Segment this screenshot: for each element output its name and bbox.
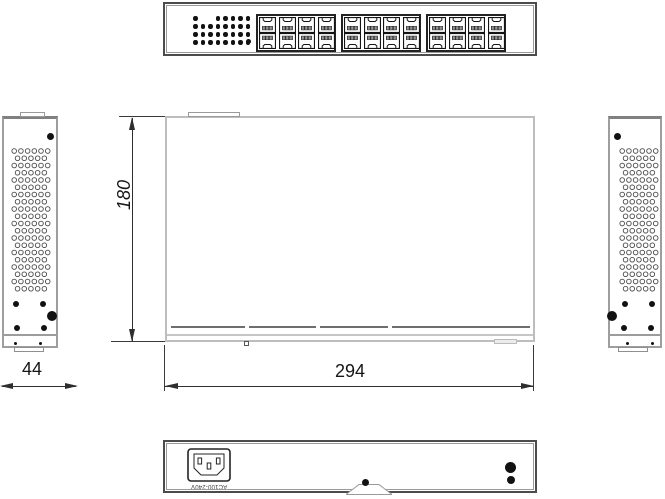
rj45-port <box>468 33 485 54</box>
left-side-top-tab <box>20 112 45 117</box>
port-group <box>341 14 421 52</box>
rj45-port-icon <box>279 17 296 33</box>
rj45-port-icon <box>344 17 361 33</box>
led-dot <box>231 32 236 37</box>
notch-screw-dot <box>362 479 369 486</box>
rj45-port-icon <box>468 17 485 33</box>
rj45-port <box>488 33 505 54</box>
led-dot <box>193 24 198 29</box>
power-inlet <box>187 448 231 487</box>
rj45-port <box>383 33 400 54</box>
top-view <box>165 116 535 342</box>
small-pin-dot <box>14 342 17 345</box>
led-dot <box>208 40 213 45</box>
rj45-port <box>259 33 276 54</box>
led-dot <box>201 32 206 37</box>
rj45-port-icon <box>383 17 400 33</box>
top-view-rear-tab <box>188 112 240 117</box>
rj45-port-icon <box>279 33 296 49</box>
port-group <box>256 14 336 52</box>
led-dot <box>246 24 251 29</box>
arrowhead-up-icon <box>129 117 135 130</box>
mount-notch <box>346 482 392 499</box>
rj45-port-icon <box>429 17 446 33</box>
led-dot <box>231 24 236 29</box>
led-dot <box>201 40 206 45</box>
power-led-dot <box>246 39 251 44</box>
right-side-view <box>608 116 662 348</box>
rj45-port <box>279 33 296 54</box>
top-view-rear-edge-segment <box>320 326 388 328</box>
led-dot <box>223 32 228 37</box>
top-view-rear-edge-segment <box>392 326 530 328</box>
mount-hole-dot <box>649 301 655 307</box>
led-dot <box>216 40 221 45</box>
top-view-small-square-marker <box>244 341 249 346</box>
mount-hole-dot <box>13 301 19 307</box>
rj45-port-icon <box>403 17 420 33</box>
led-dot <box>193 16 198 21</box>
mount-hole-dot <box>41 325 47 331</box>
rj45-port-icon <box>259 33 276 49</box>
top-view-front-strip-line <box>167 334 533 336</box>
rj45-port-icon <box>403 33 420 49</box>
vent-holes-icon <box>618 147 660 292</box>
led-dot <box>208 32 213 37</box>
led-dot <box>216 32 221 37</box>
top-view-rear-edge-segment <box>171 326 245 328</box>
extension-line <box>111 341 165 342</box>
vent-grid <box>618 147 660 297</box>
led-dot <box>216 16 221 21</box>
side-base-divider <box>4 334 56 336</box>
rj45-port-icon <box>318 17 335 33</box>
rj45-port <box>318 33 335 54</box>
left-side-foot <box>14 347 44 352</box>
dimension-line <box>132 118 133 341</box>
rj45-port <box>364 33 381 54</box>
rear-knob-large-dot <box>505 462 516 473</box>
led-dot <box>238 40 243 45</box>
small-pin-dot <box>651 342 654 345</box>
arrowhead-right-icon <box>65 383 78 389</box>
rj45-port <box>298 33 315 54</box>
rj45-port <box>429 33 446 54</box>
rj45-port <box>449 33 466 54</box>
extension-line <box>119 116 165 117</box>
mount-hole-dot <box>40 301 46 307</box>
port-group <box>426 14 506 52</box>
mount-hole-dot <box>622 301 628 307</box>
rj45-port-icon <box>298 17 315 33</box>
left-side-view <box>2 116 58 348</box>
led-dot <box>238 16 243 21</box>
rj45-port-icon <box>383 33 400 49</box>
rear-view: AC100-240V <box>163 440 537 493</box>
vent-grid <box>10 147 52 297</box>
arrowhead-left-icon <box>165 383 178 389</box>
rj45-port-icon <box>259 17 276 33</box>
led-dot <box>223 16 228 21</box>
led-dot <box>238 24 243 29</box>
dimension-label-height: 180 <box>114 165 134 225</box>
arrowhead-right-icon <box>521 383 534 389</box>
rj45-port-icon <box>488 17 505 33</box>
mount-hole-dot <box>621 325 627 331</box>
side-base-divider <box>610 334 660 336</box>
led-dot <box>231 40 236 45</box>
led-dot <box>246 16 251 21</box>
vent-holes-icon <box>10 147 52 292</box>
led-dot <box>193 32 198 37</box>
rj45-port-icon <box>344 33 361 49</box>
front-view <box>163 2 537 56</box>
rear-knob-small-dot <box>507 476 515 484</box>
arrowhead-down-icon <box>129 329 135 342</box>
led-dot <box>201 24 206 29</box>
rj45-port <box>403 33 420 54</box>
mount-notch-icon <box>346 484 392 495</box>
power-inlet-label: AC100-240V <box>187 483 231 489</box>
mount-hole-dot <box>648 325 654 331</box>
top-view-front-slot <box>494 339 517 344</box>
rj45-port-icon <box>429 33 446 49</box>
large-mount-hole-dot <box>47 311 57 321</box>
led-dot <box>246 32 251 37</box>
small-pin-dot <box>626 342 629 345</box>
led-dot <box>231 16 236 21</box>
led-dot <box>223 40 228 45</box>
arrowhead-left-icon <box>0 383 13 389</box>
rj45-port-icon <box>318 33 335 49</box>
drawing-canvas: 180 294 44 AC100-240V <box>0 0 665 499</box>
led-dot <box>208 24 213 29</box>
led-dot <box>193 40 198 45</box>
rj45-port-icon <box>488 33 505 49</box>
small-pin-dot <box>39 342 42 345</box>
large-mount-hole-dot <box>607 311 617 321</box>
screw-hole-dot <box>47 133 54 140</box>
rj45-port-icon <box>449 17 466 33</box>
right-side-foot <box>618 347 648 352</box>
rj45-port-icon <box>364 17 381 33</box>
led-dot <box>223 24 228 29</box>
led-matrix <box>193 16 255 50</box>
rj45-port-icon <box>468 33 485 49</box>
rj45-port-icon <box>364 33 381 49</box>
led-dot <box>216 24 221 29</box>
rj45-port-icon <box>449 33 466 49</box>
rj45-port <box>344 33 361 54</box>
dimension-label-width: 294 <box>310 361 390 381</box>
dimension-label-depth: 44 <box>8 359 56 379</box>
power-inlet-icon <box>187 448 231 482</box>
led-dot <box>238 32 243 37</box>
rj45-port-icon <box>298 33 315 49</box>
mount-hole-dot <box>14 325 20 331</box>
dimension-line <box>165 386 534 387</box>
top-view-rear-edge-segment <box>249 326 316 328</box>
screw-hole-dot <box>614 133 621 140</box>
